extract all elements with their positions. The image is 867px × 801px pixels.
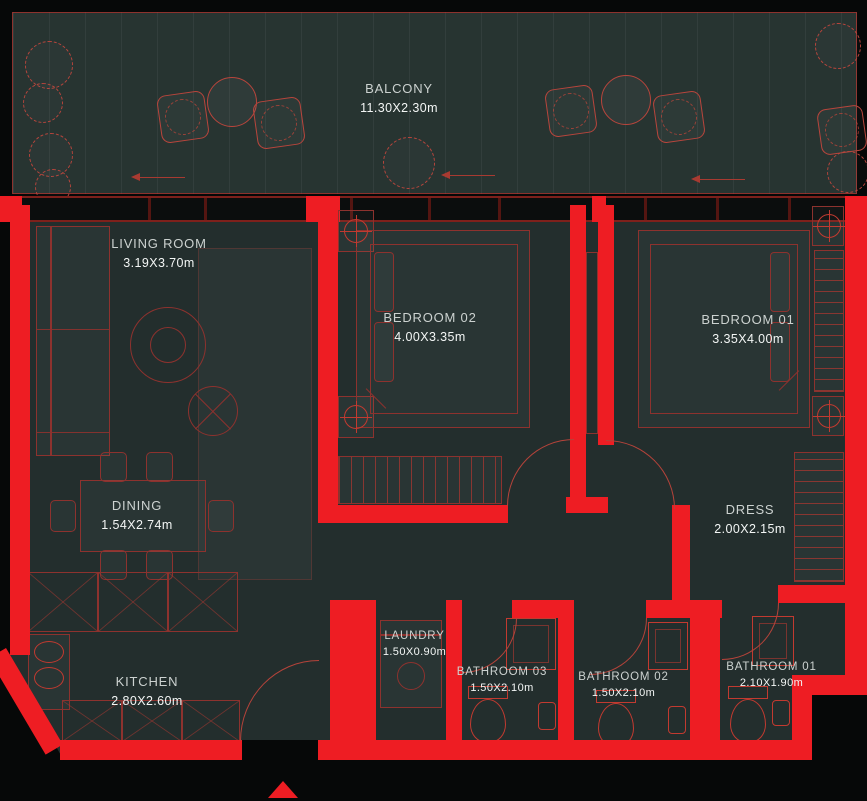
room-name: LAUNDRY: [337, 630, 492, 642]
wall-segment: [60, 740, 242, 760]
sink-icon: [668, 706, 686, 734]
room-label-laundry: LAUNDRY 1.50X0.90m: [337, 630, 492, 658]
pillow-icon: [770, 252, 790, 312]
wardrobe-icon: [338, 456, 502, 504]
entrance-opening: [240, 740, 320, 760]
room-dims: 1.50X0.90m: [337, 646, 492, 658]
room-dims: 1.50X2.10m: [546, 687, 701, 699]
lamp-icon: [344, 405, 368, 429]
room-name: BEDROOM 02: [340, 310, 520, 325]
room-label-dining: DINING 1.54X2.74m: [57, 498, 217, 532]
tree-icon: [25, 41, 73, 89]
room-name: BALCONY: [299, 81, 499, 96]
window-divider: [428, 198, 431, 220]
tree-icon: [207, 77, 257, 127]
planter-icon: [544, 84, 598, 138]
room-name: KITCHEN: [67, 674, 227, 689]
cabinet-icon: [168, 572, 238, 632]
toilet-icon: [470, 699, 506, 743]
floor-plan: BALCONY 11.30X2.30m: [0, 0, 867, 801]
pillow-icon: [374, 252, 394, 312]
room-dims: 3.35X4.00m: [658, 332, 838, 346]
room-dims: 4.00X3.35m: [340, 330, 520, 344]
room-dims: 2.80X2.60m: [67, 694, 227, 708]
wall-segment: [845, 205, 867, 675]
lamp-icon: [817, 214, 841, 238]
room-dims: 1.54X2.74m: [57, 518, 217, 532]
lamp-icon: [817, 404, 841, 428]
tree-icon: [601, 75, 651, 125]
chair-icon: [146, 452, 173, 482]
shower-icon: [648, 622, 688, 670]
lamp-icon: [344, 219, 368, 243]
washer-door: [397, 662, 425, 690]
window-divider: [148, 198, 151, 220]
entrance-arrow-icon: [268, 781, 298, 798]
wall-segment: [646, 600, 692, 618]
room-label-balcony: BALCONY 11.30X2.30m: [299, 81, 499, 115]
sink-icon: [772, 700, 790, 726]
sink-icon: [34, 641, 64, 663]
room-dims: 2.00X2.15m: [670, 522, 830, 536]
room-name: BATHROOM 02: [546, 671, 701, 683]
wall-segment: [318, 505, 508, 523]
room-name: DINING: [57, 498, 217, 513]
arrow-icon: [693, 179, 745, 180]
sofa-back: [50, 226, 52, 456]
floor-cutout: [812, 695, 867, 761]
room-name: LIVING ROOM: [79, 236, 239, 251]
room-label-kitchen: KITCHEN 2.80X2.60m: [67, 674, 227, 708]
balcony-area: BALCONY 11.30X2.30m: [12, 12, 857, 194]
tree-icon: [815, 23, 861, 69]
tree-icon: [23, 83, 63, 123]
side-table-icon: [188, 386, 238, 436]
cabinet-icon: [28, 572, 98, 632]
wall-segment: [778, 585, 845, 603]
tree-icon: [827, 151, 867, 193]
wall-segment: [512, 600, 560, 618]
room-name: DRESS: [670, 502, 830, 517]
window-divider: [204, 198, 207, 220]
window-wall: [0, 196, 867, 222]
room-name: BATHROOM 01: [694, 661, 849, 673]
room-label-bedroom1: BEDROOM 01 3.35X4.00m: [658, 312, 838, 346]
wall-segment: [10, 205, 30, 655]
room-label-dress: DRESS 2.00X2.15m: [670, 502, 830, 536]
tree-icon: [383, 137, 435, 189]
window-divider: [498, 198, 501, 220]
planter-icon: [252, 96, 306, 150]
window-divider: [644, 198, 647, 220]
sink-icon: [34, 667, 64, 689]
room-label-bedroom2: BEDROOM 02 4.00X3.35m: [340, 310, 520, 344]
toilet-icon: [730, 699, 766, 743]
room-name: BEDROOM 01: [658, 312, 838, 327]
chair-icon: [100, 452, 127, 482]
room-dims: 11.30X2.30m: [299, 101, 499, 115]
room-dims: 2.10X1.90m: [694, 677, 849, 689]
wall-segment: [318, 205, 338, 523]
room-label-bath1: BATHROOM 01 2.10X1.90m: [694, 661, 849, 689]
coffee-table-icon: [150, 327, 186, 363]
wall-segment: [330, 600, 376, 760]
window-divider: [716, 198, 719, 220]
planter-icon: [816, 104, 867, 156]
planter-icon: [652, 90, 706, 144]
sink-icon: [538, 702, 556, 730]
planter-icon: [156, 90, 210, 144]
cabinet-icon: [98, 572, 168, 632]
room-dims: 3.19X3.70m: [79, 256, 239, 270]
arrow-icon: [133, 177, 185, 178]
window-divider: [788, 198, 791, 220]
arrow-icon: [443, 175, 495, 176]
closet-icon: [586, 252, 598, 434]
room-label-bath2: BATHROOM 02 1.50X2.10m: [546, 671, 701, 699]
room-label-living: LIVING ROOM 3.19X3.70m: [79, 236, 239, 270]
wall-segment: [598, 205, 614, 445]
